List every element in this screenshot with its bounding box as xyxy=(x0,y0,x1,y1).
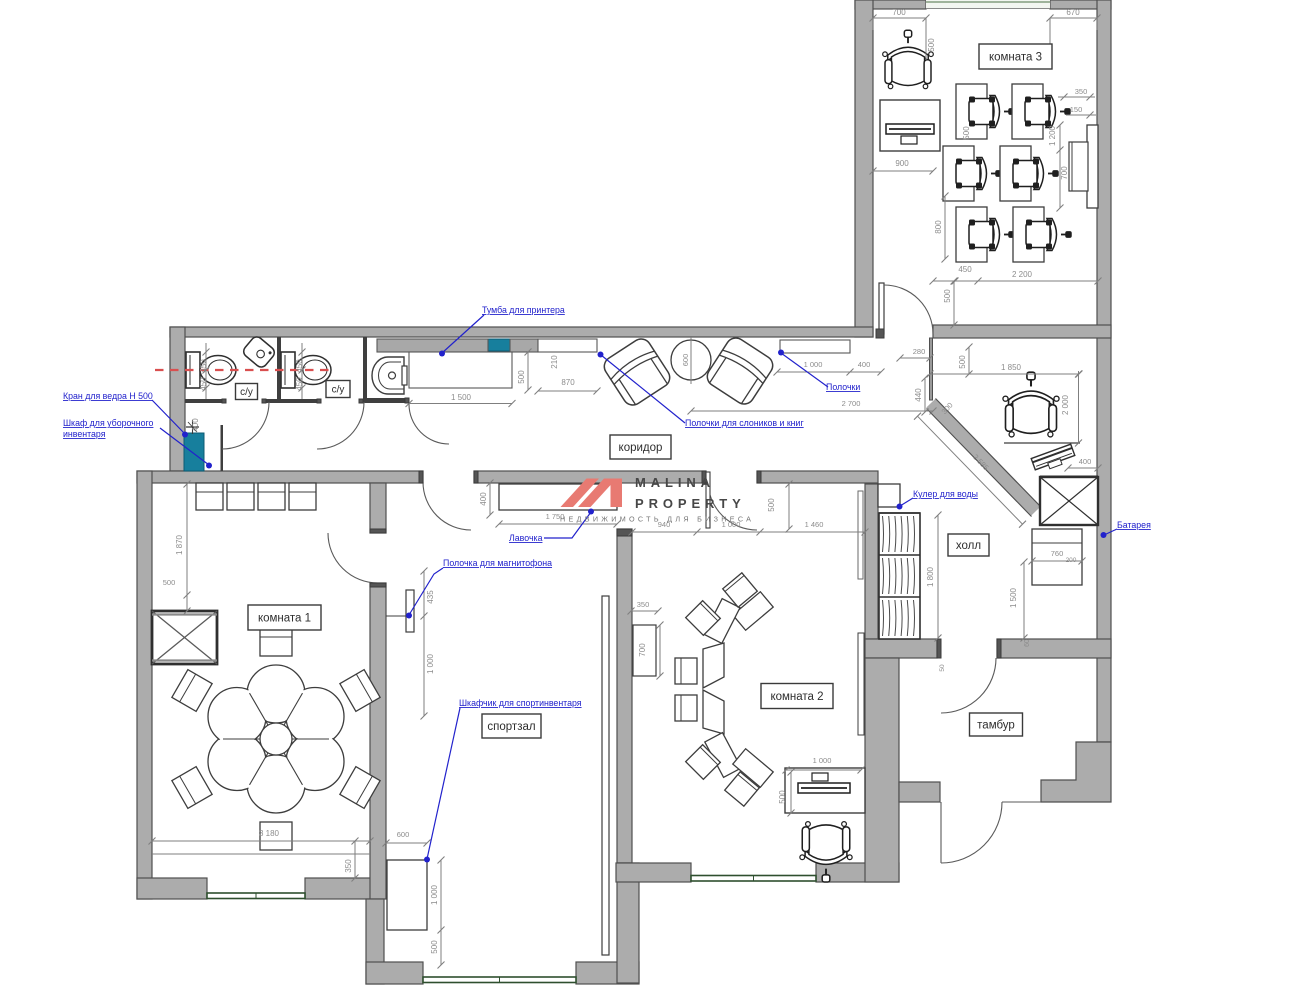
svg-text:1 000: 1 000 xyxy=(426,653,435,674)
svg-text:800: 800 xyxy=(934,220,943,234)
svg-text:1 000: 1 000 xyxy=(430,884,439,905)
svg-text:210: 210 xyxy=(550,355,559,369)
svg-text:Полочка для магнитофона: Полочка для магнитофона xyxy=(443,558,552,568)
svg-text:500: 500 xyxy=(943,289,952,303)
svg-text:Полочки: Полочки xyxy=(826,382,860,392)
svg-text:1 460: 1 460 xyxy=(805,520,824,529)
svg-text:Батарея: Батарея xyxy=(1117,520,1151,530)
svg-text:450: 450 xyxy=(199,377,208,391)
svg-text:MALINA: MALINA xyxy=(635,475,715,490)
svg-text:тамбур: тамбур xyxy=(977,720,1015,732)
svg-text:450: 450 xyxy=(295,359,304,373)
svg-text:комната 1: комната 1 xyxy=(258,613,311,625)
svg-text:500: 500 xyxy=(430,940,439,954)
svg-text:Шкаф для уборочного: Шкаф для уборочного xyxy=(63,418,154,428)
svg-text:комната 2: комната 2 xyxy=(770,691,823,703)
svg-text:350: 350 xyxy=(344,859,353,873)
svg-text:700: 700 xyxy=(1060,166,1069,180)
svg-text:600: 600 xyxy=(681,354,690,367)
svg-text:2 700: 2 700 xyxy=(842,399,861,408)
svg-text:50: 50 xyxy=(939,664,946,672)
svg-text:комната 3: комната 3 xyxy=(989,52,1042,64)
svg-text:1 800: 1 800 xyxy=(926,566,935,587)
svg-text:400: 400 xyxy=(191,418,200,432)
svg-text:450: 450 xyxy=(958,265,972,274)
svg-text:400: 400 xyxy=(1079,457,1092,466)
svg-text:500: 500 xyxy=(767,498,776,512)
svg-text:инвентаря: инвентаря xyxy=(63,429,106,439)
svg-text:с/у: с/у xyxy=(332,385,345,396)
svg-text:холл: холл xyxy=(956,540,981,552)
svg-text:НЕДВИЖИМОСТЬ ДЛЯ БИЗНЕСА: НЕДВИЖИМОСТЬ ДЛЯ БИЗНЕСА xyxy=(560,515,754,524)
svg-text:2 200: 2 200 xyxy=(1012,270,1033,279)
svg-text:600: 600 xyxy=(397,830,410,839)
svg-text:350: 350 xyxy=(637,600,650,609)
svg-text:150: 150 xyxy=(1070,105,1083,114)
svg-text:1 870: 1 870 xyxy=(175,534,184,555)
svg-text:700: 700 xyxy=(892,8,906,17)
svg-text:400: 400 xyxy=(479,492,488,506)
svg-text:670: 670 xyxy=(1066,8,1080,17)
svg-text:Лавочка: Лавочка xyxy=(509,533,543,543)
svg-text:спортзал: спортзал xyxy=(487,721,535,733)
svg-text:1 000: 1 000 xyxy=(804,360,823,369)
svg-text:350: 350 xyxy=(1075,87,1088,96)
svg-text:Тумба для принтера: Тумба для принтера xyxy=(482,305,565,315)
svg-text:Кулер для воды: Кулер для воды xyxy=(913,489,978,499)
svg-text:PROPERTY: PROPERTY xyxy=(635,496,746,511)
svg-text:Шкафчик для спортинвентаря: Шкафчик для спортинвентаря xyxy=(459,698,582,708)
svg-text:2 000: 2 000 xyxy=(1061,394,1070,415)
svg-text:200: 200 xyxy=(1066,557,1077,564)
svg-text:500: 500 xyxy=(962,126,971,140)
svg-text:500: 500 xyxy=(927,38,936,52)
svg-text:280: 280 xyxy=(913,347,926,356)
svg-text:440: 440 xyxy=(914,388,923,402)
svg-text:500: 500 xyxy=(163,578,176,587)
svg-text:900: 900 xyxy=(895,159,909,168)
svg-text:с/у: с/у xyxy=(240,387,253,398)
svg-text:450: 450 xyxy=(295,377,304,391)
svg-text:435: 435 xyxy=(426,590,435,604)
svg-text:1 200: 1 200 xyxy=(1048,125,1057,146)
svg-text:760: 760 xyxy=(1051,549,1064,558)
svg-text:1 500: 1 500 xyxy=(1009,587,1018,608)
svg-text:400: 400 xyxy=(858,360,871,369)
svg-text:1 850: 1 850 xyxy=(1001,363,1022,372)
svg-text:1 000: 1 000 xyxy=(813,756,832,765)
svg-text:Полочки для слоников и книг: Полочки для слоников и книг xyxy=(685,418,804,428)
svg-text:Кран для ведра Н 500: Кран для ведра Н 500 xyxy=(63,391,153,401)
svg-text:1 500: 1 500 xyxy=(451,393,472,402)
svg-text:коридор: коридор xyxy=(619,442,663,454)
svg-text:60: 60 xyxy=(1024,639,1031,647)
svg-text:500: 500 xyxy=(958,355,967,369)
svg-text:700: 700 xyxy=(638,643,647,657)
svg-text:3 180: 3 180 xyxy=(259,829,280,838)
svg-text:500: 500 xyxy=(778,790,787,804)
svg-text:870: 870 xyxy=(561,378,575,387)
svg-text:450: 450 xyxy=(199,359,208,373)
svg-text:500: 500 xyxy=(517,370,526,384)
